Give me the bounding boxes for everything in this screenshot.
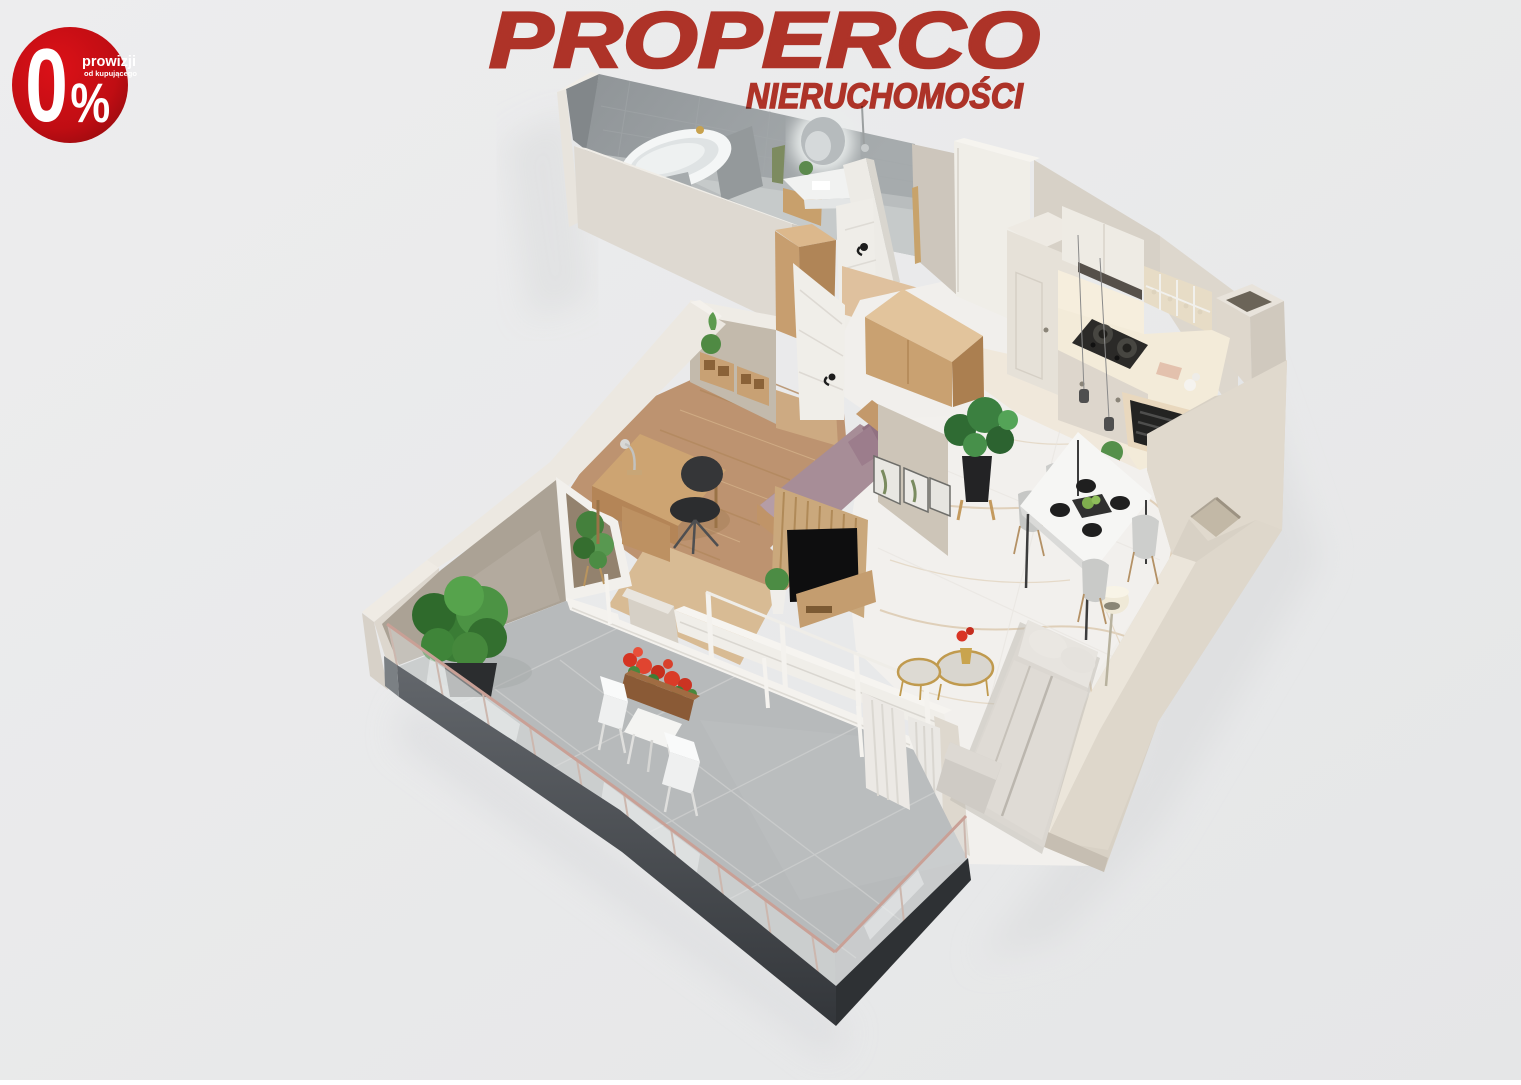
svg-text:prowizji: prowizji xyxy=(82,54,136,70)
svg-text:%: % xyxy=(70,71,110,134)
svg-text:NIERUCHOMOŚCI: NIERUCHOMOŚCI xyxy=(746,76,1024,116)
svg-text:PROPERCO: PROPERCO xyxy=(489,0,1040,84)
svg-text:od kupującego: od kupującego xyxy=(84,69,137,78)
svg-text:0: 0 xyxy=(25,28,68,144)
